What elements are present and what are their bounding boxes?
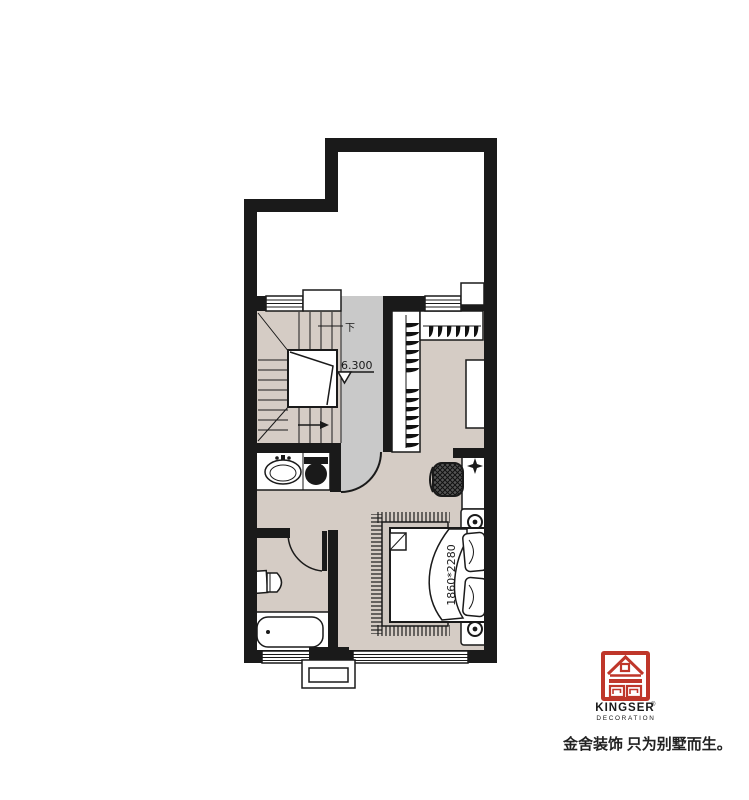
window <box>425 296 461 311</box>
duct-box <box>461 283 484 305</box>
kingser-logo-icon <box>603 653 648 699</box>
vanity-room <box>250 452 330 490</box>
brand-subtitle: DECORATION <box>596 715 655 722</box>
floor-plan-drawing: 下 6.300 <box>0 0 749 800</box>
flue-box <box>303 290 341 311</box>
brand-logo: KINGSER ® DECORATION 金舍装饰 只为别墅而生。 <box>562 653 732 753</box>
bay-window-box <box>302 647 355 688</box>
toilet-side-icon <box>253 571 281 594</box>
window <box>353 651 468 663</box>
bed: 1860*2280 <box>390 528 488 622</box>
window <box>266 296 303 311</box>
bathtub-icon <box>251 612 329 652</box>
chair-icon <box>430 463 463 496</box>
brand-name: KINGSER <box>595 702 654 714</box>
floor-plan-page: 下 6.300 <box>0 0 749 800</box>
registered-mark: ® <box>651 701 656 708</box>
elevation-value: 6.300 <box>341 359 373 372</box>
toilet-top-icon <box>304 457 328 485</box>
brand-tagline: 金舍装饰 只为别墅而生。 <box>562 735 732 753</box>
bed-size-label: 1860*2280 <box>445 544 458 606</box>
pillow-icon <box>462 532 487 572</box>
stairs-down-label: 下 <box>345 323 355 334</box>
pillow-icon <box>462 577 487 617</box>
